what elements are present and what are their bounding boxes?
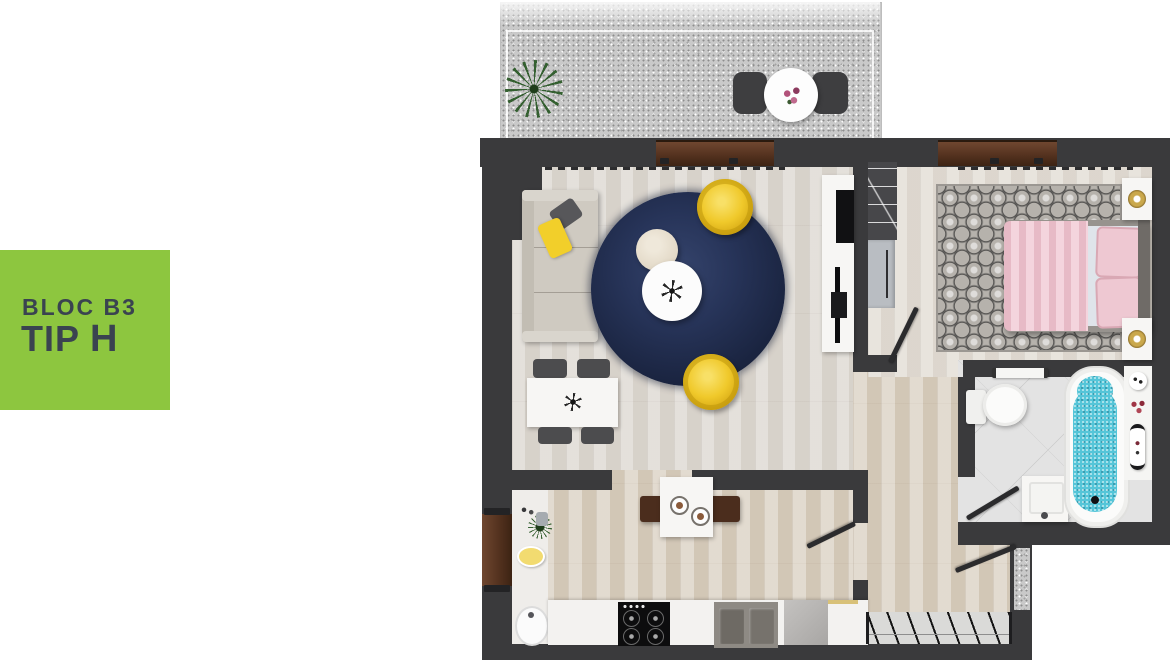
living-room-curtain (545, 167, 785, 170)
faucet (1041, 512, 1048, 519)
kitchen-sink (714, 602, 778, 648)
counter-accent-strip (828, 600, 858, 604)
entry-closet-hangers (866, 612, 1012, 644)
wall-bathroom-bottom (958, 522, 1170, 545)
burner (623, 610, 640, 627)
dishwasher (784, 600, 828, 645)
window-handle (990, 158, 999, 164)
sink-basin-right (749, 608, 774, 644)
bed (1004, 220, 1150, 332)
bathtub (1064, 366, 1130, 528)
living-room-window (656, 140, 774, 166)
bathtub-pillow (1077, 376, 1113, 406)
wall-living-bedroom (853, 167, 868, 363)
floor-plan (0, 0, 1170, 660)
kitchen-pepper-dots (520, 505, 536, 517)
kitchen-window (482, 514, 512, 586)
bathtub-water (1073, 388, 1117, 512)
vanity-basin (1029, 482, 1064, 514)
type-word: TIP (21, 318, 80, 359)
wardrobe (868, 162, 897, 240)
dresser-handle (886, 250, 888, 298)
balcony-fade (500, 2, 880, 26)
nightstand-top (1122, 178, 1152, 220)
kitchen-plate-lemons (517, 546, 545, 567)
stove-knobs (622, 604, 646, 609)
kitchen-small-sink (515, 606, 549, 646)
sofa-armrest-bottom (522, 331, 598, 342)
bathtub-drain (1091, 496, 1099, 504)
balcony-chair-left (733, 72, 767, 114)
dresser (868, 240, 895, 308)
bed-headboard (1138, 218, 1150, 334)
balcony-flowers (780, 84, 804, 108)
burner (647, 628, 664, 645)
stove (618, 602, 670, 646)
dining-chair (538, 427, 572, 444)
window-handle (660, 158, 669, 164)
burner (647, 610, 664, 627)
wall-top (480, 138, 1170, 167)
sofa-cushion-seam (534, 292, 598, 293)
nightstand-bottom (1122, 318, 1152, 360)
kitchen-teapot (536, 512, 548, 526)
dining-table-centerpiece-icon (564, 393, 582, 411)
type-name: TIPH (21, 318, 118, 361)
armchair-yellow-top (697, 179, 753, 235)
lamp (1128, 330, 1146, 348)
shelf-flowers (1128, 398, 1148, 416)
type-letter: H (90, 318, 118, 360)
faucet (528, 612, 534, 618)
wall-living-kitchen-left (512, 470, 612, 490)
cup (691, 507, 710, 526)
burner (623, 628, 640, 645)
bed-duvet (1004, 221, 1088, 331)
sink-basin-left (719, 608, 744, 644)
armchair-yellow-bottom (683, 354, 739, 410)
towel-rack (992, 368, 1048, 378)
cup-contents (676, 502, 683, 509)
window-handle (729, 158, 738, 164)
sofa-backrest (522, 190, 534, 342)
tv-console (831, 292, 847, 318)
shelf-dispenser (1130, 424, 1145, 470)
tv-cabinet (822, 175, 854, 352)
block-name: BLOC B3 (22, 294, 137, 321)
apartment-type-label: BLOC B3 TIPH (0, 250, 170, 410)
toilet (966, 384, 1028, 428)
wall-kitchen-hall-upper-stub (853, 490, 868, 523)
dining-chair (577, 359, 610, 378)
bed-pillow (1095, 226, 1143, 279)
window-handle (484, 508, 510, 515)
coffee-table-decor-icon (661, 280, 683, 302)
bath-shelf (1124, 366, 1152, 480)
window-handle (484, 585, 510, 592)
shelf-jar (1129, 372, 1147, 390)
bathroom-vanity (1022, 476, 1068, 522)
tv-panel (836, 190, 854, 243)
wall-right (1152, 138, 1170, 545)
balcony-plant-icon (505, 60, 563, 118)
bedroom-curtain (958, 167, 1133, 170)
window-handle (1034, 158, 1043, 164)
entry-threshold (1014, 548, 1030, 610)
cup-contents (697, 513, 704, 520)
dining-chair (581, 427, 614, 444)
cup (670, 496, 689, 515)
dining-chair (533, 359, 567, 378)
sofa-armrest-top (522, 190, 598, 201)
wall-living-kitchen-right (692, 470, 868, 490)
toilet-bowl (983, 384, 1027, 426)
lamp (1128, 190, 1146, 208)
